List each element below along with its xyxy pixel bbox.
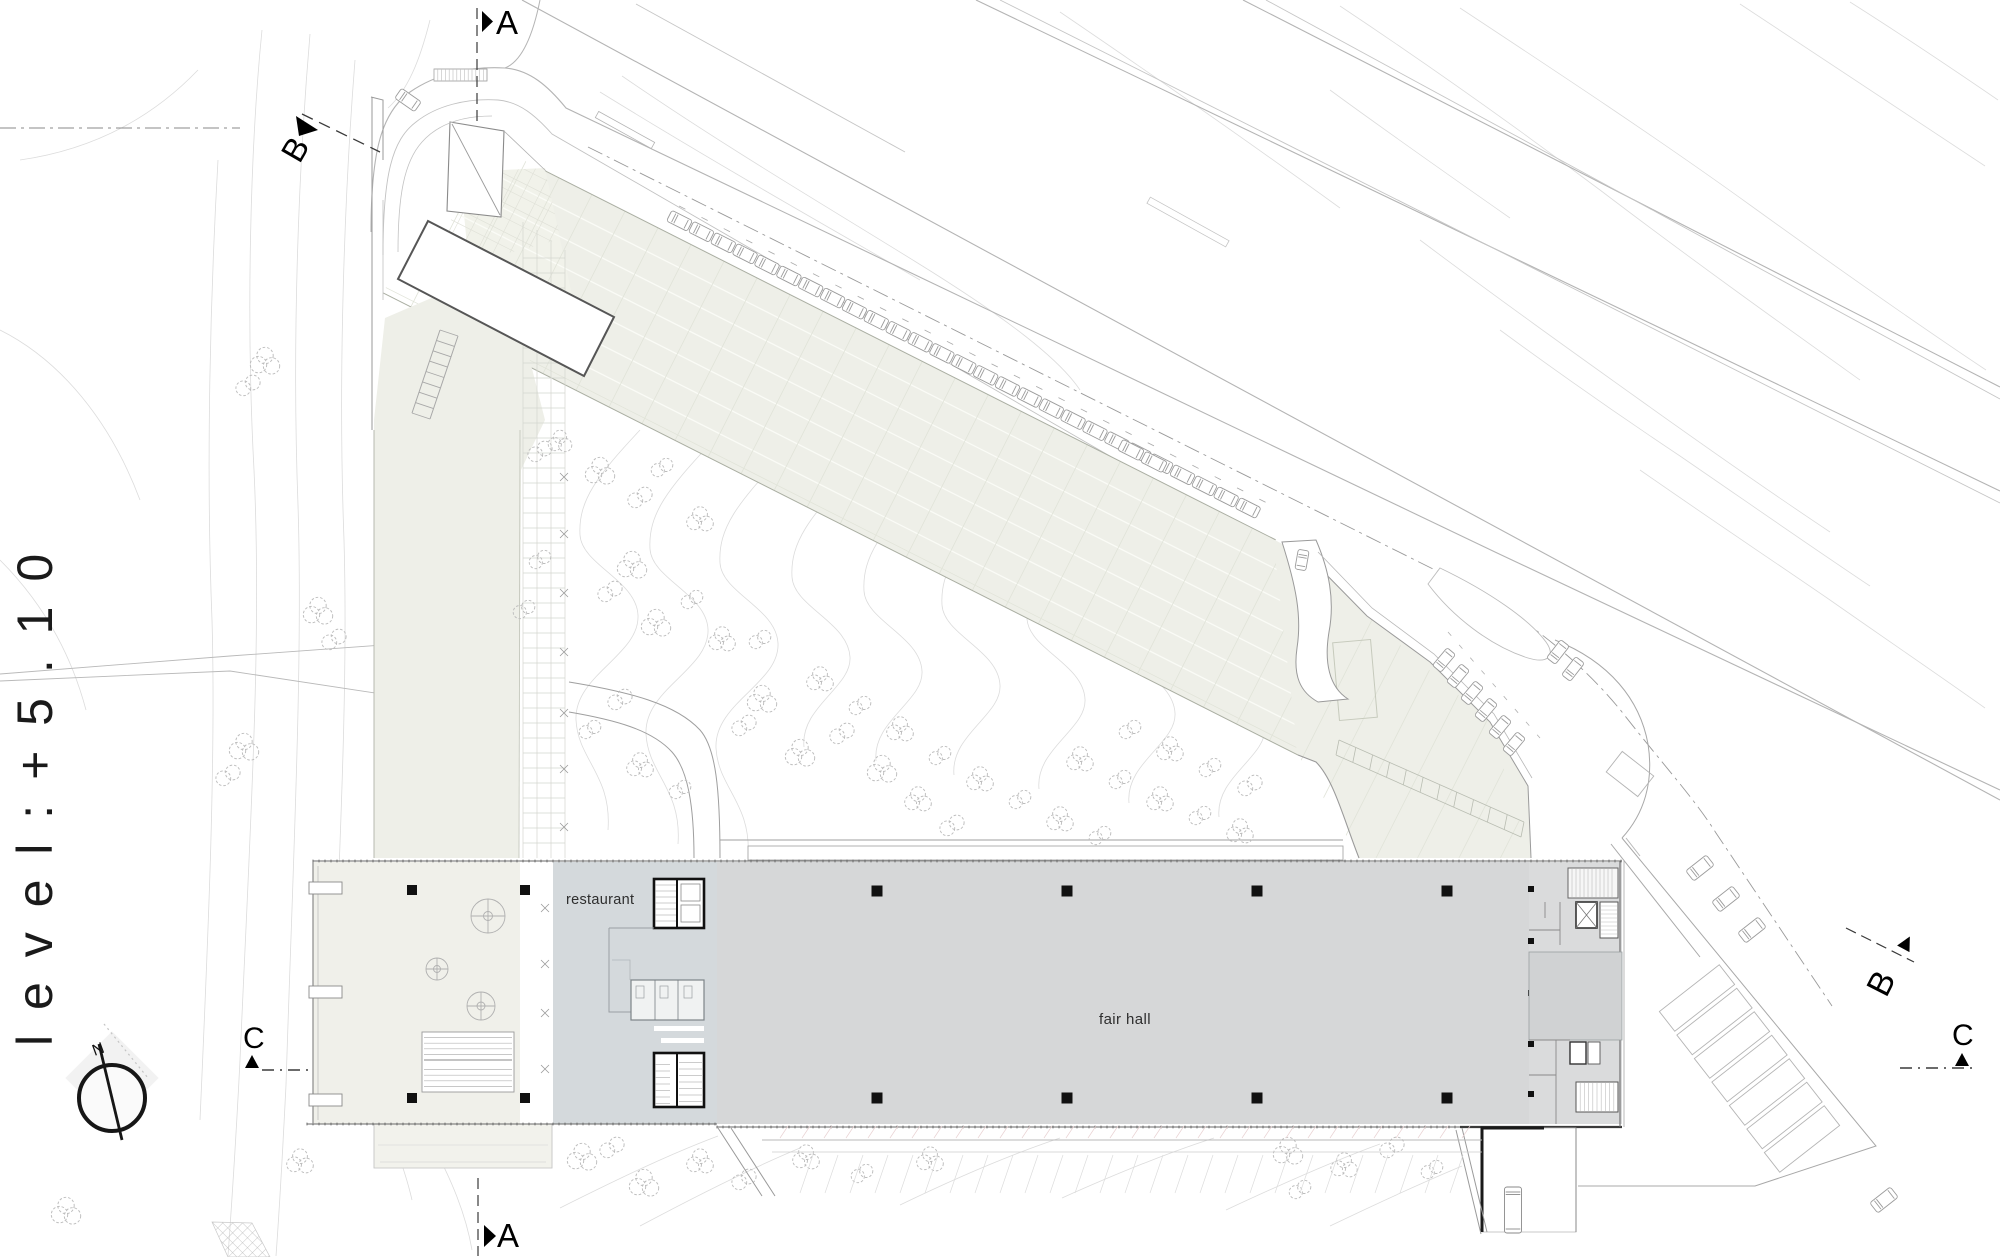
svg-text:l e v e l : + 5 . 1 0: l e v e l : + 5 . 1 0 — [7, 548, 63, 1046]
svg-text:fair hall: fair hall — [1099, 1011, 1151, 1028]
svg-text:A: A — [497, 1217, 519, 1254]
svg-text:C: C — [1952, 1019, 1974, 1052]
svg-text:restaurant: restaurant — [566, 892, 634, 908]
svg-text:A: A — [496, 4, 518, 41]
svg-text:C: C — [243, 1022, 265, 1055]
